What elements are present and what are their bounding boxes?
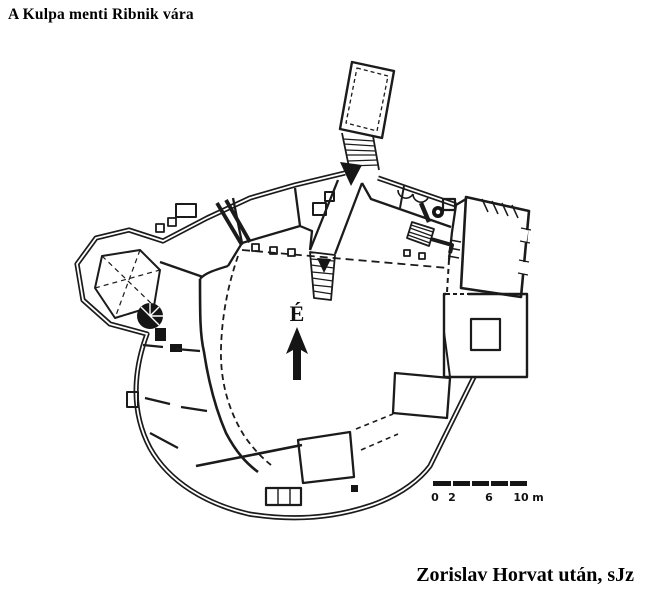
attribution-caption: Zorislav Horvat után, sJz bbox=[416, 564, 634, 587]
scanned-plan-page: A Kulpa menti Ribnik vára bbox=[0, 0, 650, 600]
north-arrow-icon bbox=[286, 327, 308, 380]
north-label: É bbox=[290, 301, 305, 326]
well-icon bbox=[432, 206, 444, 218]
south-buttress bbox=[266, 488, 301, 505]
scale-bar: 0 2 6 10 m bbox=[431, 481, 544, 504]
northeast-tower bbox=[461, 197, 531, 297]
southeast-rooms bbox=[298, 373, 450, 492]
scale-label-10: 10 bbox=[513, 491, 529, 504]
courtyard-staircase bbox=[310, 252, 335, 300]
scale-label-6: 6 bbox=[485, 491, 493, 504]
entrance-bridge bbox=[340, 62, 394, 138]
scale-unit: m bbox=[532, 491, 543, 504]
north-range-stairs bbox=[407, 222, 434, 246]
entrance-corridor bbox=[310, 180, 362, 254]
castle-floor-plan: É 0 2 6 10 m bbox=[0, 0, 650, 600]
outer-curtain-wall bbox=[77, 173, 474, 518]
spiral-staircase bbox=[137, 303, 166, 341]
north-indicator: É bbox=[286, 301, 308, 380]
scale-label-0: 0 bbox=[431, 491, 439, 504]
courtyard-arcade bbox=[242, 244, 448, 268]
courtyard-dashed-wall bbox=[221, 256, 271, 465]
entrance-bridge-stairs bbox=[340, 133, 379, 186]
north-range bbox=[362, 183, 466, 292]
scale-label-2: 2 bbox=[448, 491, 456, 504]
east-annex bbox=[444, 294, 527, 377]
annex-inner-structure bbox=[471, 319, 500, 350]
